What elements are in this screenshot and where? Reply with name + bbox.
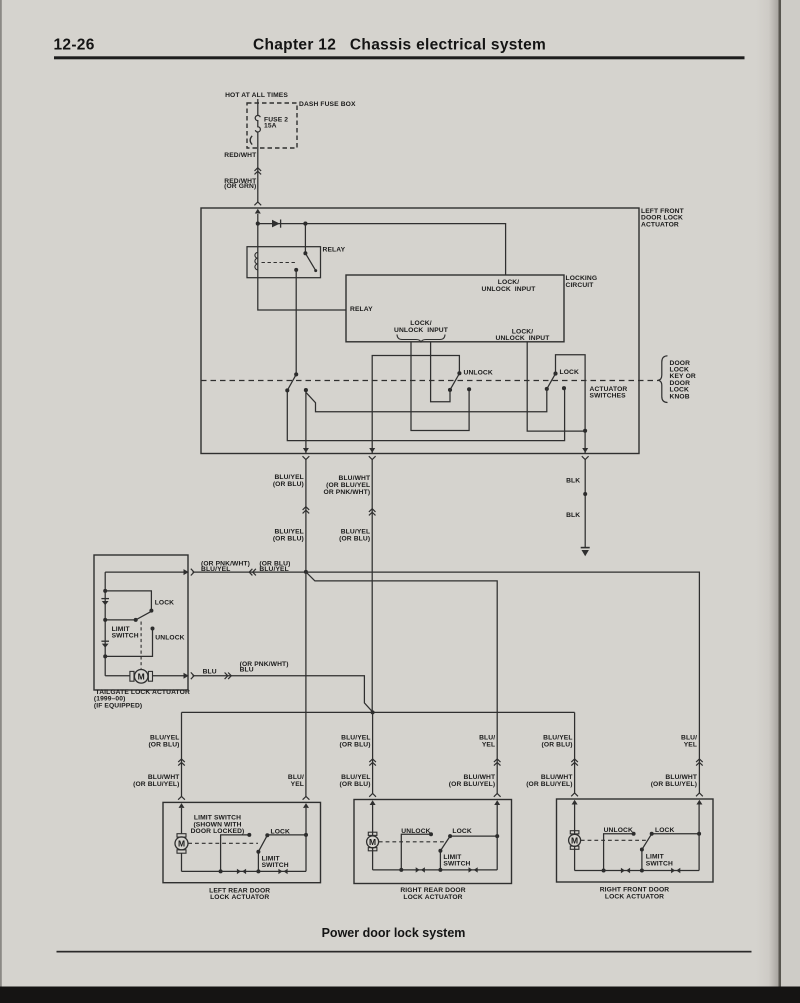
svg-text:(OR BLU): (OR BLU) (339, 535, 370, 542)
svg-text:YEL: YEL (684, 741, 697, 748)
svg-text:BLK: BLK (566, 512, 580, 519)
svg-text:M: M (369, 837, 376, 847)
svg-text:RED/WHT: RED/WHT (224, 152, 257, 159)
svg-text:BLU: BLU (203, 669, 217, 676)
svg-text:M: M (571, 835, 578, 845)
svg-text:M: M (138, 671, 145, 681)
svg-text:LOCK: LOCK (560, 369, 579, 376)
svg-text:LOCK: LOCK (452, 828, 471, 835)
svg-text:BLU/WHT: BLU/WHT (339, 475, 371, 482)
svg-text:UNLOCK: UNLOCK (604, 827, 633, 834)
svg-text:(OR BLU/YEL): (OR BLU/YEL) (449, 781, 495, 788)
svg-text:HOT AT ALL TIMES: HOT AT ALL TIMES (225, 92, 288, 99)
svg-text:Chapter 12 Chassis electrica: Chapter 12 Chassis electrical system (253, 37, 546, 54)
svg-text:LOCK: LOCK (155, 600, 174, 607)
svg-text:OR PNK/WHT): OR PNK/WHT) (324, 489, 371, 496)
svg-text:UNLOCK INPUT: UNLOCK INPUT (394, 327, 449, 334)
svg-text:UNLOCK INPUT: UNLOCK INPUT (496, 335, 551, 342)
svg-text:12-26: 12-26 (54, 37, 95, 54)
svg-text:BLU/YEL: BLU/YEL (341, 528, 370, 535)
svg-text:(OR BLU): (OR BLU) (148, 741, 179, 748)
svg-text:(IF EQUIPPED): (IF EQUIPPED) (94, 702, 142, 709)
svg-text:SWITCH: SWITCH (443, 861, 470, 868)
svg-text:BLU/YEL: BLU/YEL (274, 474, 303, 481)
svg-text:(OR BLU/YEL): (OR BLU/YEL) (133, 781, 179, 788)
svg-text:UNLOCK INPUT: UNLOCK INPUT (482, 286, 537, 293)
svg-text:(OR BLU): (OR BLU) (542, 741, 573, 748)
svg-text:RIGHT REAR DOOR: RIGHT REAR DOOR (400, 887, 465, 894)
svg-text:(OR BLU/YEL): (OR BLU/YEL) (526, 781, 572, 788)
svg-text:LOCK ACTUATOR: LOCK ACTUATOR (605, 893, 664, 900)
svg-text:15A: 15A (264, 122, 277, 129)
svg-text:BLU: BLU (240, 667, 254, 674)
svg-text:UNLOCK: UNLOCK (155, 635, 184, 642)
svg-text:SWITCH: SWITCH (646, 860, 673, 867)
svg-text:(OR BLU): (OR BLU) (273, 481, 304, 488)
svg-text:ACTUATOR: ACTUATOR (641, 221, 679, 228)
svg-text:LOCK: LOCK (655, 827, 674, 834)
svg-text:BLU/YEL: BLU/YEL (274, 528, 303, 535)
svg-text:SWITCH: SWITCH (112, 632, 139, 639)
svg-text:SWITCHES: SWITCHES (590, 393, 627, 400)
svg-text:DOOR LOCKED): DOOR LOCKED) (191, 828, 245, 835)
svg-text:LOCK ACTUATOR: LOCK ACTUATOR (403, 894, 462, 901)
svg-text:YEL: YEL (482, 741, 495, 748)
svg-text:(OR BLU): (OR BLU) (273, 535, 304, 542)
svg-text:UNLOCK: UNLOCK (464, 369, 493, 376)
svg-text:RIGHT FRONT DOOR: RIGHT FRONT DOOR (600, 886, 670, 893)
svg-text:LIMIT SWITCH: LIMIT SWITCH (194, 814, 241, 821)
svg-text:LOCK/: LOCK/ (498, 279, 519, 286)
svg-text:Power door lock system: Power door lock system (322, 926, 466, 940)
svg-text:DASH FUSE BOX: DASH FUSE BOX (299, 101, 356, 108)
svg-text:(OR BLU/YEL): (OR BLU/YEL) (651, 781, 697, 788)
svg-text:BLK: BLK (566, 478, 580, 485)
svg-text:SWITCH: SWITCH (262, 862, 289, 869)
svg-text:YEL: YEL (291, 781, 304, 788)
svg-text:(OR BLU): (OR BLU) (340, 741, 371, 748)
svg-text:RELAY: RELAY (323, 246, 346, 253)
svg-text:M: M (178, 838, 185, 848)
svg-text:LOCK ACTUATOR: LOCK ACTUATOR (210, 894, 269, 901)
svg-text:LOCK/: LOCK/ (410, 320, 431, 327)
svg-text:RELAY: RELAY (350, 306, 373, 313)
svg-text:(OR BLU): (OR BLU) (340, 781, 371, 788)
svg-text:(OR GRN): (OR GRN) (224, 183, 256, 190)
svg-text:CIRCUIT: CIRCUIT (566, 282, 595, 289)
svg-text:KNOB: KNOB (670, 393, 690, 400)
